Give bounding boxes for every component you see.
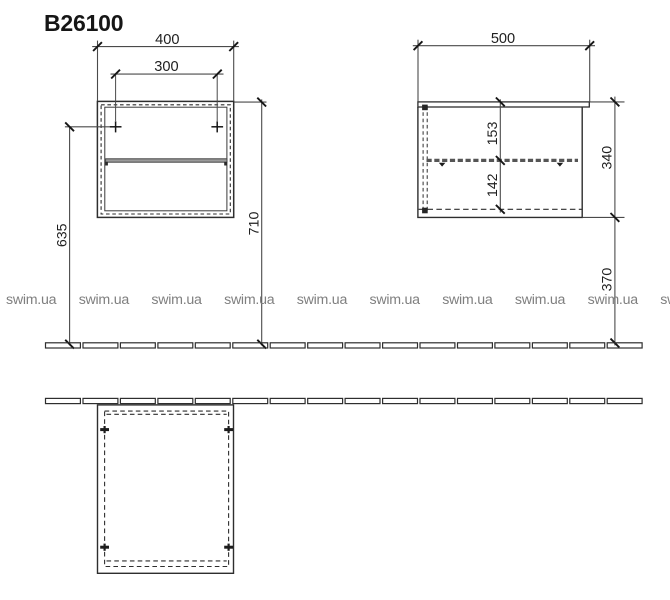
svg-text:710: 710 (246, 212, 262, 236)
svg-text:swim.ua: swim.ua (515, 292, 566, 308)
svg-text:370: 370 (600, 268, 616, 292)
svg-text:swim.ua: swim.ua (588, 292, 639, 308)
svg-text:300: 300 (154, 59, 178, 75)
svg-text:swim.ua: swim.ua (151, 292, 202, 308)
svg-text:B26100: B26100 (44, 10, 123, 36)
svg-text:swim.ua: swim.ua (660, 292, 670, 308)
svg-text:142: 142 (485, 173, 501, 197)
svg-text:swim.ua: swim.ua (79, 292, 130, 308)
svg-text:swim.ua: swim.ua (224, 292, 275, 308)
svg-text:swim.ua: swim.ua (370, 292, 421, 308)
svg-text:635: 635 (54, 223, 70, 247)
svg-text:swim.ua: swim.ua (6, 292, 57, 308)
svg-text:500: 500 (491, 31, 515, 47)
svg-text:swim.ua: swim.ua (442, 292, 493, 308)
svg-text:400: 400 (155, 32, 179, 48)
svg-text:340: 340 (600, 146, 616, 170)
svg-text:swim.ua: swim.ua (297, 292, 348, 308)
svg-text:153: 153 (485, 122, 501, 146)
